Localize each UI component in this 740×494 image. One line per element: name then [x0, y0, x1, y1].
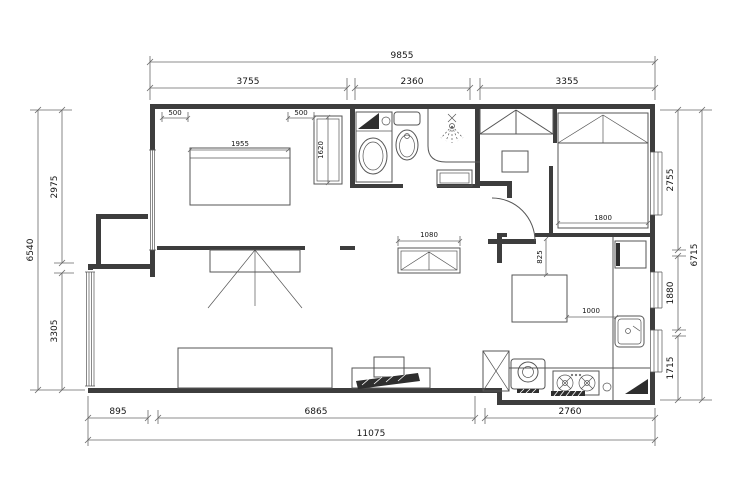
dim-label-top-3: 3355 — [556, 77, 579, 87]
dim-label-left-1: 2975 — [50, 176, 60, 199]
shower-tray-inner — [440, 173, 469, 183]
window-gap-3 — [649, 152, 656, 215]
dim-right: 2755 1880 1715 6715 — [660, 107, 712, 403]
dim-line-clearance — [544, 237, 548, 277]
dim-left: 6540 2975 3305 — [26, 107, 85, 393]
wardrobe2-hanging — [558, 115, 648, 143]
wall-bath-hall — [475, 104, 480, 188]
wall-bottom-kitchen — [497, 400, 655, 405]
valve-icon — [382, 117, 390, 125]
kitchen-table-icon — [512, 275, 567, 322]
dim-label-right-total: 6715 — [690, 244, 700, 267]
sofa-icon — [178, 348, 332, 388]
sink-drain — [626, 329, 631, 334]
entry-closet-icon — [480, 109, 553, 134]
floor-plan-drawing: 9855 3755 2360 3355 6540 2975 3305 2755 … — [0, 0, 740, 494]
sink-tap — [633, 326, 640, 331]
dim-label-pier-right: 500 — [294, 109, 307, 117]
washer2-door — [518, 362, 538, 382]
dim-label-worktop: 1000 — [582, 307, 600, 315]
dim-top: 9855 3755 2360 3355 — [147, 51, 658, 100]
dim-label-bottom-3: 2760 — [559, 407, 582, 417]
dim-label-right-1: 2755 — [666, 169, 676, 192]
dim-label-bottom-1: 895 — [109, 407, 126, 417]
dim-label-top-1: 3755 — [237, 77, 260, 87]
wall-niche-top — [96, 214, 154, 219]
walls — [88, 104, 655, 405]
floor-drain — [603, 383, 611, 391]
entry-hall — [480, 109, 553, 241]
shoe-console-cross — [401, 252, 457, 270]
wall-bath-south-left — [353, 184, 403, 188]
wall-kitchen-north-2 — [535, 233, 655, 237]
window-gap-4 — [649, 272, 656, 308]
stove-knob-3 — [579, 374, 581, 376]
door-leaf — [488, 239, 536, 244]
dim-label-console: 1080 — [420, 231, 438, 239]
double-bed-icon — [190, 148, 290, 205]
shower-screen — [428, 109, 480, 162]
shower-valve — [448, 114, 456, 122]
wall-top — [150, 104, 655, 109]
wall-kitchen-west-stub — [497, 233, 502, 263]
floor-plan-page: 9855 3755 2360 3355 6540 2975 3305 2755 … — [0, 0, 740, 494]
dim-line-left-total — [30, 107, 85, 393]
washing-machine-drum — [363, 142, 383, 170]
burner-right-grate — [581, 377, 593, 389]
bathroom — [356, 109, 480, 186]
dim-label-right-3: 1715 — [666, 357, 676, 380]
dim-interior: 500 500 1955 1620 1800 1080 825 1000 — [160, 109, 650, 319]
dim-line-bed1 — [188, 148, 290, 152]
corner-shelf-icon — [358, 113, 379, 129]
kitchen — [483, 237, 650, 400]
stove-knob-1 — [571, 374, 573, 376]
speaker-box — [374, 357, 404, 377]
wall-niche-left — [96, 214, 101, 266]
stove-knob-2 — [575, 374, 577, 376]
washer2-icon — [511, 359, 545, 389]
dim-label-bed2: 1800 — [594, 214, 612, 222]
dim-label-top-total: 9855 — [391, 51, 414, 61]
hall-cabinet — [502, 151, 528, 172]
kitchen-sink-basin — [618, 319, 641, 344]
tv-view-lines — [208, 250, 302, 308]
wall-hall-stub — [480, 181, 512, 186]
dim-line-left-segments — [54, 107, 74, 393]
wall-bed1-south — [155, 246, 305, 250]
window-gap-5 — [649, 330, 656, 372]
kitchen-sink-icon — [615, 316, 644, 347]
wall-bed2-west — [549, 166, 553, 237]
living-room — [178, 248, 460, 389]
dim-label-clearance: 825 — [536, 250, 544, 263]
dim-label-right-2: 1880 — [666, 281, 676, 304]
dim-label-left-2: 3305 — [50, 320, 60, 343]
dim-label-top-2: 2360 — [401, 77, 424, 87]
wall-hall-stub-2 — [507, 186, 512, 198]
tv-icon — [356, 373, 420, 389]
shower-tray-icon — [437, 170, 472, 186]
wall-bed1-bath — [350, 104, 355, 188]
toilet-tank — [394, 112, 420, 125]
dim-label-pier-left: 500 — [168, 109, 181, 117]
dim-line-wardrobe — [326, 115, 330, 185]
fridge-door-bar — [616, 243, 620, 266]
bedroom-2 — [558, 113, 648, 228]
duct-shaft-cross — [483, 351, 509, 391]
dim-label-bed1: 1955 — [231, 140, 249, 148]
toilet-flush — [405, 134, 410, 139]
dim-label-wardrobe: 1620 — [317, 141, 325, 159]
wall-bottom-living — [88, 388, 502, 393]
dim-label-bottom-total: 11075 — [357, 429, 386, 439]
wall-closet-split — [553, 104, 557, 143]
dim-label-bottom-2: 6865 — [305, 407, 328, 417]
dim-line-worktop — [565, 315, 618, 319]
wall-bed1-south-2 — [340, 246, 355, 250]
burner-left-grate — [559, 377, 571, 389]
corner-triangle-icon — [625, 379, 648, 394]
dim-label-left-total: 6540 — [26, 238, 36, 261]
